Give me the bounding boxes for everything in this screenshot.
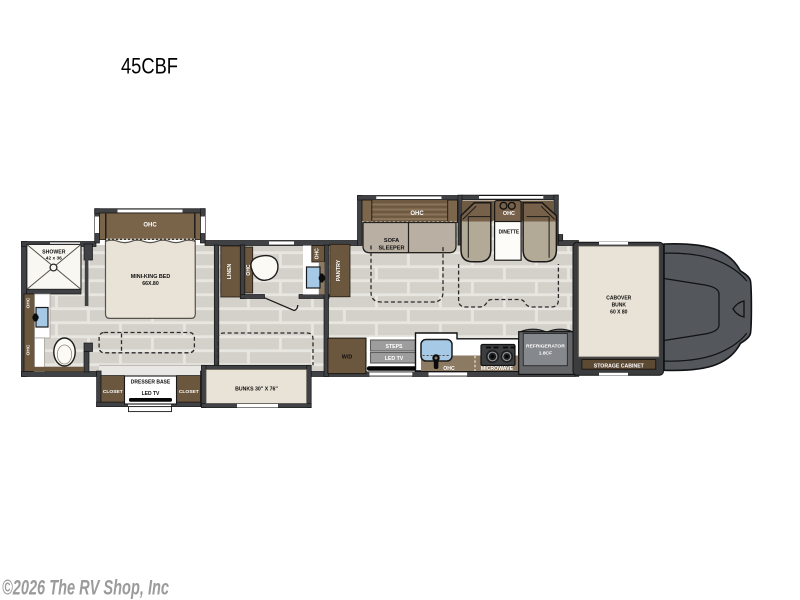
svg-text:CABOVER: CABOVER <box>606 296 631 302</box>
svg-text:DRESSER BASE: DRESSER BASE <box>131 379 171 385</box>
svg-text:©2026 The RV Shop, Inc: ©2026 The RV Shop, Inc <box>2 577 169 600</box>
svg-text:PANTRY: PANTRY <box>336 259 342 281</box>
svg-text:45CBF: 45CBF <box>121 54 178 79</box>
svg-text:CLOSET: CLOSET <box>103 389 123 395</box>
svg-text:SHOWER: SHOWER <box>42 250 66 256</box>
svg-text:LED TV: LED TV <box>142 391 160 397</box>
svg-text:SLEEPER: SLEEPER <box>378 245 404 251</box>
svg-text:OHC: OHC <box>443 366 455 372</box>
svg-text:BUNK: BUNK <box>612 303 627 309</box>
svg-text:OHC: OHC <box>503 211 515 217</box>
svg-text:MICROWAVE: MICROWAVE <box>481 366 514 372</box>
svg-text:1.8CF: 1.8CF <box>539 351 552 357</box>
svg-text:SOFA: SOFA <box>384 238 399 244</box>
svg-text:BUNKS 30″ X 76″: BUNKS 30″ X 76″ <box>235 386 278 392</box>
svg-text:DINETTE: DINETTE <box>499 230 520 236</box>
svg-text:REFRIGERATOR: REFRIGERATOR <box>526 344 565 350</box>
svg-text:CLOSET: CLOSET <box>179 389 199 395</box>
svg-text:OHC: OHC <box>143 223 157 229</box>
svg-text:OHC: OHC <box>26 344 32 355</box>
svg-text:MINI-KING BED: MINI-KING BED <box>131 274 171 280</box>
svg-text:W/D: W/D <box>342 354 353 360</box>
svg-text:LINEN: LINEN <box>227 263 233 279</box>
svg-text:LED TV: LED TV <box>385 356 404 362</box>
svg-text:60 X 80: 60 X 80 <box>610 310 627 316</box>
svg-text:OHC: OHC <box>26 297 32 308</box>
svg-text:OHC: OHC <box>314 248 320 259</box>
svg-text:STEPS: STEPS <box>385 344 403 350</box>
svg-text:66X.80: 66X.80 <box>142 281 159 287</box>
svg-text:STORAGE CABINET: STORAGE CABINET <box>594 363 645 369</box>
svg-text:OHC: OHC <box>246 264 252 276</box>
svg-text:OHC: OHC <box>410 211 424 217</box>
svg-text:42 x 36: 42 x 36 <box>46 256 62 262</box>
